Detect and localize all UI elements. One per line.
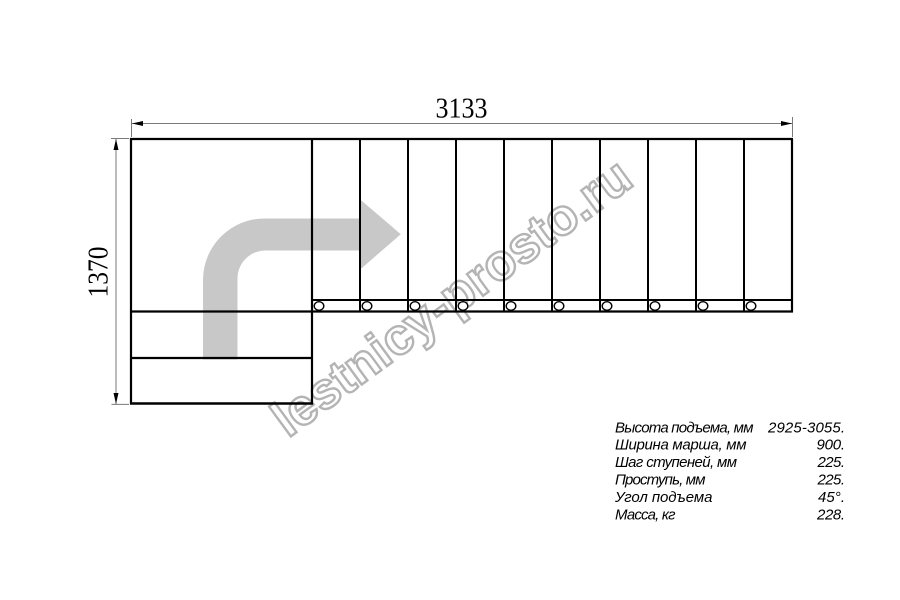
- svg-text:Ширина марша, мм: Ширина марша, мм: [615, 437, 747, 454]
- svg-text:225.: 225.: [817, 454, 846, 471]
- svg-text:1370: 1370: [83, 247, 115, 298]
- svg-text:Высота подъема, мм: Высота подъема, мм: [615, 419, 754, 436]
- svg-text:228.: 228.: [816, 506, 845, 523]
- svg-text:45°.: 45°.: [818, 489, 845, 506]
- svg-text:Шаг ступеней, мм: Шаг ступеней, мм: [615, 454, 737, 471]
- svg-text:2925-3055.: 2925-3055.: [767, 419, 845, 436]
- svg-text:900.: 900.: [817, 437, 846, 454]
- svg-text:Масса, кг: Масса, кг: [615, 506, 676, 523]
- svg-text:Угол подъема: Угол подъема: [614, 489, 713, 506]
- svg-text:225.: 225.: [817, 472, 846, 489]
- svg-text:Проступь, мм: Проступь, мм: [615, 472, 706, 489]
- svg-text:3133: 3133: [436, 93, 488, 125]
